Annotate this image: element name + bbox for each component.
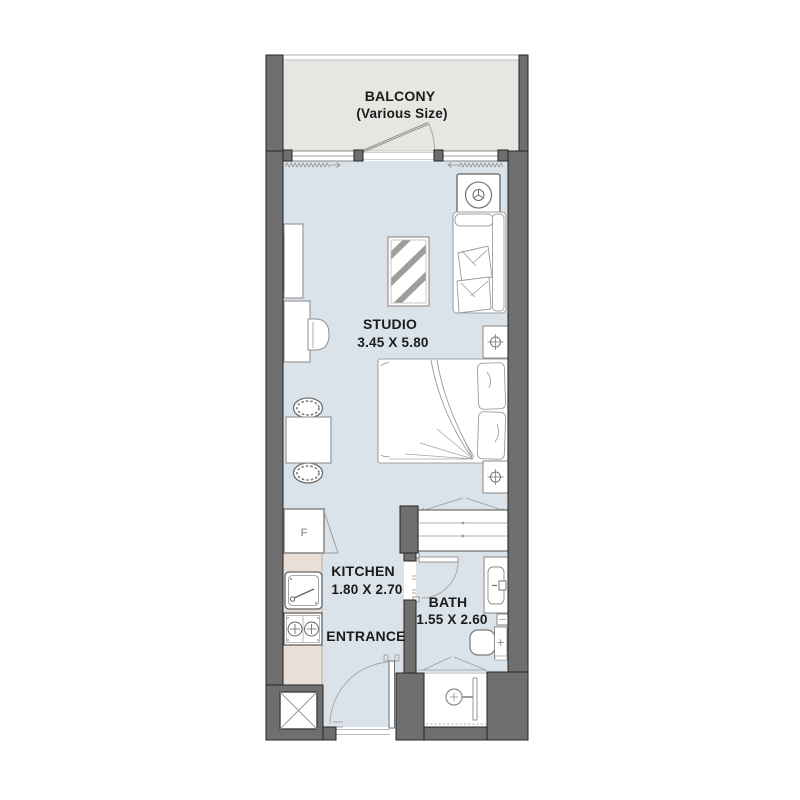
pillow-icon [477, 363, 506, 410]
fridge-label: F [301, 527, 308, 539]
floor-plan-drawing: F [0, 0, 800, 800]
balcony-label: BALCONY [365, 88, 436, 104]
bottom-right-wall [487, 672, 528, 740]
desk-icon [284, 301, 310, 362]
nightstand-icon [483, 461, 508, 493]
bath-dims-label: 1.55 X 2.60 [416, 612, 487, 627]
sofa-icon [453, 212, 506, 313]
entrance-side-wall [396, 673, 424, 740]
window-mullion [434, 150, 443, 161]
bathroom-accessory-icon [497, 614, 508, 625]
balcony-right-wall [519, 55, 528, 151]
bottom-wall [323, 727, 336, 740]
washing-machine-icon [457, 174, 500, 216]
balcony-left-wall [266, 55, 283, 151]
kitchen-dims-label: 1.80 X 2.70 [331, 582, 402, 597]
entrance-label: ENTRANCE [326, 628, 405, 644]
shower-bottom-wall [424, 727, 487, 740]
wardrobe-stub-wall [400, 506, 418, 553]
kitchen-label: KITCHEN [331, 563, 395, 579]
dining-chair-icon [294, 398, 323, 418]
vanity-sink-icon [484, 557, 508, 613]
desk-chair-icon [308, 319, 329, 350]
studio-dims-label: 3.45 X 5.80 [357, 335, 428, 350]
stove-icon [284, 613, 322, 645]
window-mullion [354, 150, 363, 161]
window-stub [498, 150, 508, 161]
bath-wall [404, 600, 416, 673]
left-wall [266, 151, 283, 740]
bath-label: BATH [429, 594, 468, 610]
balcony-railing [283, 55, 519, 60]
pillow-icon [477, 412, 506, 460]
dining-table-icon [286, 417, 331, 463]
floor-plan: F [0, 0, 800, 800]
tv-unit-icon [281, 224, 304, 298]
bath-wall-top [404, 553, 416, 561]
nightstand-icon [483, 326, 508, 358]
kitchen-sink-icon [285, 572, 322, 609]
toilet-icon [470, 627, 507, 660]
service-shaft-icon [280, 692, 317, 729]
studio-label: STUDIO [363, 316, 417, 332]
double-bed-icon [378, 359, 508, 463]
window-stub [283, 150, 292, 161]
balcony-size-label: (Various Size) [356, 106, 447, 121]
right-wall [508, 151, 528, 680]
dining-chair-icon [294, 463, 323, 483]
